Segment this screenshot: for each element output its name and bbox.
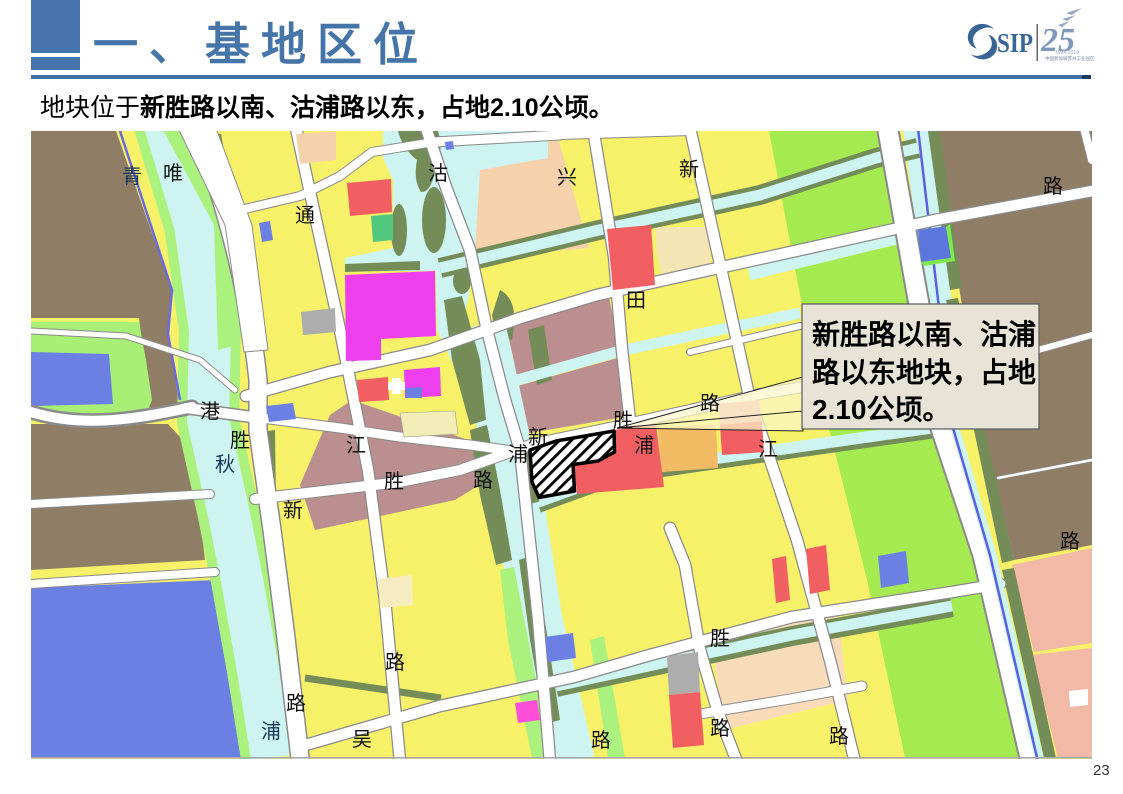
svg-text:江: 江 (346, 434, 366, 457)
svg-text:路: 路 (473, 469, 493, 492)
svg-text:新: 新 (528, 426, 548, 449)
svg-text:路: 路 (286, 692, 306, 715)
svg-text:路: 路 (1043, 175, 1063, 198)
svg-text:SIP: SIP (997, 28, 1033, 58)
svg-text:路: 路 (385, 651, 405, 674)
svg-text:通: 通 (295, 204, 315, 227)
svg-text:胜: 胜 (613, 409, 633, 432)
svg-text:新胜路以南、沽浦: 新胜路以南、沽浦 (812, 319, 1036, 350)
svg-text:胜: 胜 (710, 627, 730, 650)
svg-text:兴: 兴 (557, 166, 577, 189)
svg-text:2.10公顷。: 2.10公顷。 (812, 394, 951, 425)
svg-text:唯: 唯 (163, 162, 183, 185)
svg-text:江: 江 (758, 438, 778, 461)
svg-text:路: 路 (1060, 530, 1080, 553)
svg-text:浦: 浦 (261, 720, 281, 743)
svg-text:港: 港 (200, 400, 220, 423)
svg-text:秋: 秋 (215, 453, 235, 476)
svg-text:浦: 浦 (634, 434, 654, 457)
svg-text:新: 新 (283, 499, 303, 522)
svg-text:路: 路 (829, 725, 849, 748)
svg-text:路: 路 (700, 392, 720, 415)
svg-text:浦: 浦 (508, 443, 528, 466)
svg-text:胜: 胜 (230, 429, 250, 452)
svg-text:田: 田 (626, 290, 646, 312)
svg-text:青: 青 (122, 165, 142, 188)
svg-text:胜: 胜 (384, 470, 404, 493)
svg-text:路以东地块，占地: 路以东地块，占地 (812, 356, 1036, 388)
svg-text:路: 路 (710, 717, 730, 740)
svg-text:吴: 吴 (352, 729, 372, 751)
svg-text:中国新加坡苏州工业园区: 中国新加坡苏州工业园区 (1045, 55, 1095, 62)
svg-text:新: 新 (679, 158, 699, 181)
svg-text:沽: 沽 (428, 162, 448, 185)
svg-text:路: 路 (591, 729, 611, 752)
